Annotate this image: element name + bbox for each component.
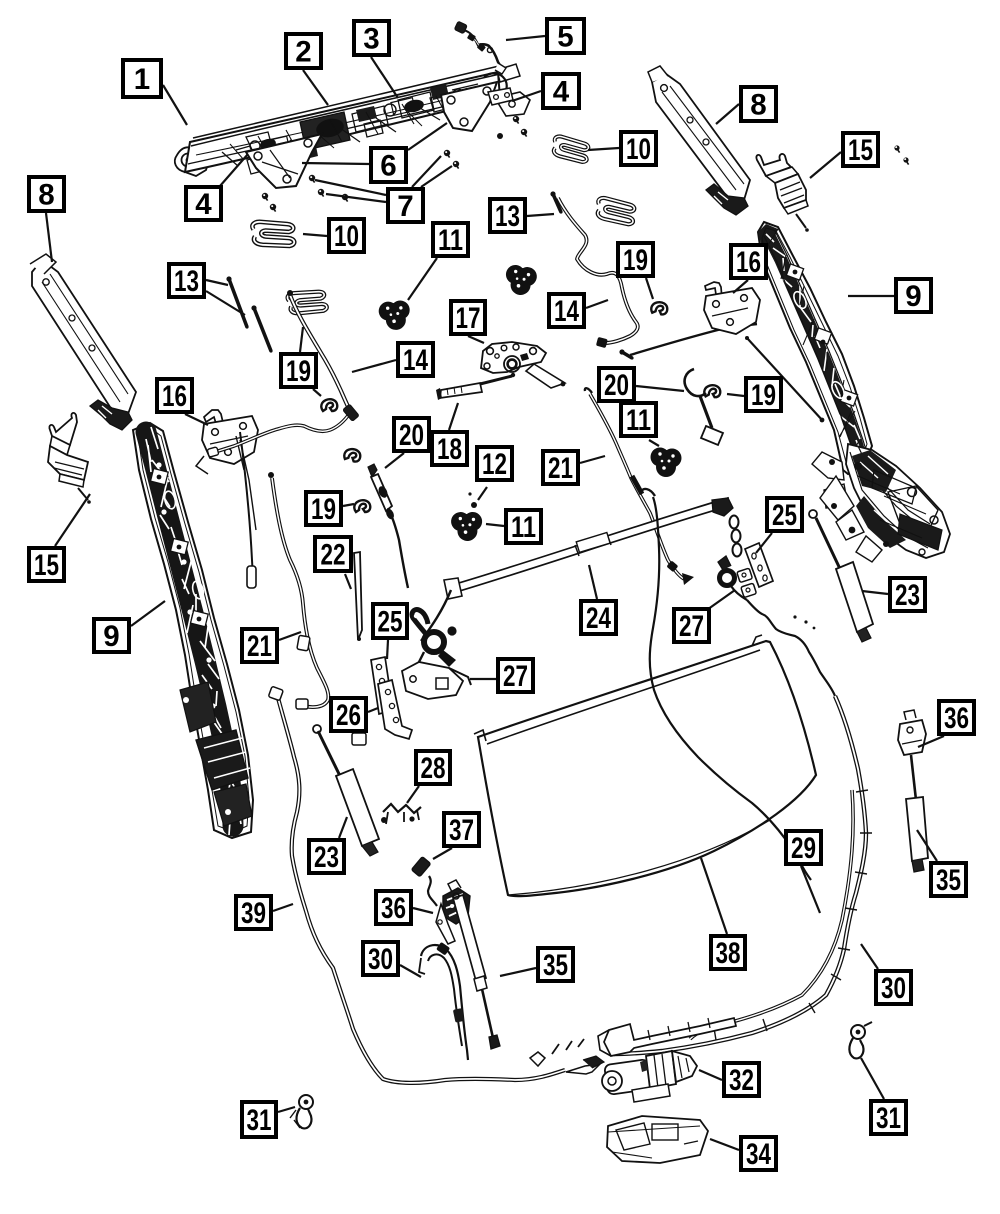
svg-text:9: 9 bbox=[103, 620, 119, 653]
svg-text:19: 19 bbox=[623, 244, 648, 277]
svg-text:16: 16 bbox=[736, 246, 761, 279]
svg-text:9: 9 bbox=[905, 280, 921, 313]
svg-text:23: 23 bbox=[314, 841, 339, 874]
svg-text:20: 20 bbox=[399, 419, 424, 452]
svg-text:34: 34 bbox=[746, 1138, 771, 1171]
svg-text:27: 27 bbox=[503, 660, 528, 693]
svg-text:19: 19 bbox=[311, 493, 336, 526]
svg-text:28: 28 bbox=[421, 752, 446, 785]
svg-text:36: 36 bbox=[944, 702, 969, 735]
svg-text:8: 8 bbox=[38, 179, 54, 212]
svg-text:19: 19 bbox=[286, 355, 311, 388]
svg-text:20: 20 bbox=[604, 369, 629, 402]
svg-text:11: 11 bbox=[626, 404, 651, 437]
svg-text:29: 29 bbox=[791, 832, 816, 865]
svg-text:30: 30 bbox=[881, 972, 906, 1005]
svg-text:21: 21 bbox=[247, 630, 272, 663]
svg-text:15: 15 bbox=[34, 549, 59, 582]
svg-text:3: 3 bbox=[363, 23, 379, 56]
svg-text:5: 5 bbox=[557, 21, 573, 54]
svg-text:4: 4 bbox=[553, 76, 570, 109]
svg-text:31: 31 bbox=[876, 1102, 901, 1135]
svg-text:22: 22 bbox=[321, 539, 346, 572]
svg-text:37: 37 bbox=[449, 814, 474, 847]
svg-text:17: 17 bbox=[456, 302, 481, 335]
svg-text:12: 12 bbox=[482, 448, 507, 481]
svg-text:14: 14 bbox=[403, 344, 428, 377]
svg-text:25: 25 bbox=[772, 499, 797, 532]
svg-text:30: 30 bbox=[368, 943, 393, 976]
svg-text:35: 35 bbox=[543, 949, 568, 982]
svg-text:10: 10 bbox=[334, 220, 359, 253]
svg-text:1: 1 bbox=[134, 63, 150, 96]
svg-text:39: 39 bbox=[241, 897, 266, 930]
svg-text:32: 32 bbox=[729, 1064, 754, 1097]
svg-text:21: 21 bbox=[548, 452, 573, 485]
svg-text:7: 7 bbox=[397, 190, 413, 223]
svg-text:4: 4 bbox=[195, 188, 212, 221]
svg-text:13: 13 bbox=[174, 265, 199, 298]
svg-text:10: 10 bbox=[626, 133, 651, 166]
svg-text:2: 2 bbox=[295, 36, 311, 69]
svg-text:24: 24 bbox=[586, 602, 611, 635]
svg-text:11: 11 bbox=[511, 511, 536, 544]
svg-text:25: 25 bbox=[378, 606, 403, 639]
svg-text:11: 11 bbox=[438, 224, 463, 257]
svg-text:35: 35 bbox=[936, 864, 961, 897]
svg-text:38: 38 bbox=[716, 937, 741, 970]
svg-text:6: 6 bbox=[380, 150, 396, 183]
svg-text:15: 15 bbox=[848, 134, 873, 167]
svg-text:18: 18 bbox=[437, 433, 462, 466]
svg-text:8: 8 bbox=[750, 89, 766, 122]
svg-text:36: 36 bbox=[381, 892, 406, 925]
svg-text:19: 19 bbox=[751, 379, 776, 412]
svg-text:26: 26 bbox=[336, 699, 361, 732]
svg-text:23: 23 bbox=[895, 579, 920, 612]
svg-text:13: 13 bbox=[495, 200, 520, 233]
svg-text:27: 27 bbox=[679, 610, 704, 643]
svg-text:31: 31 bbox=[247, 1104, 272, 1137]
svg-text:14: 14 bbox=[554, 295, 579, 328]
svg-text:16: 16 bbox=[162, 380, 187, 413]
